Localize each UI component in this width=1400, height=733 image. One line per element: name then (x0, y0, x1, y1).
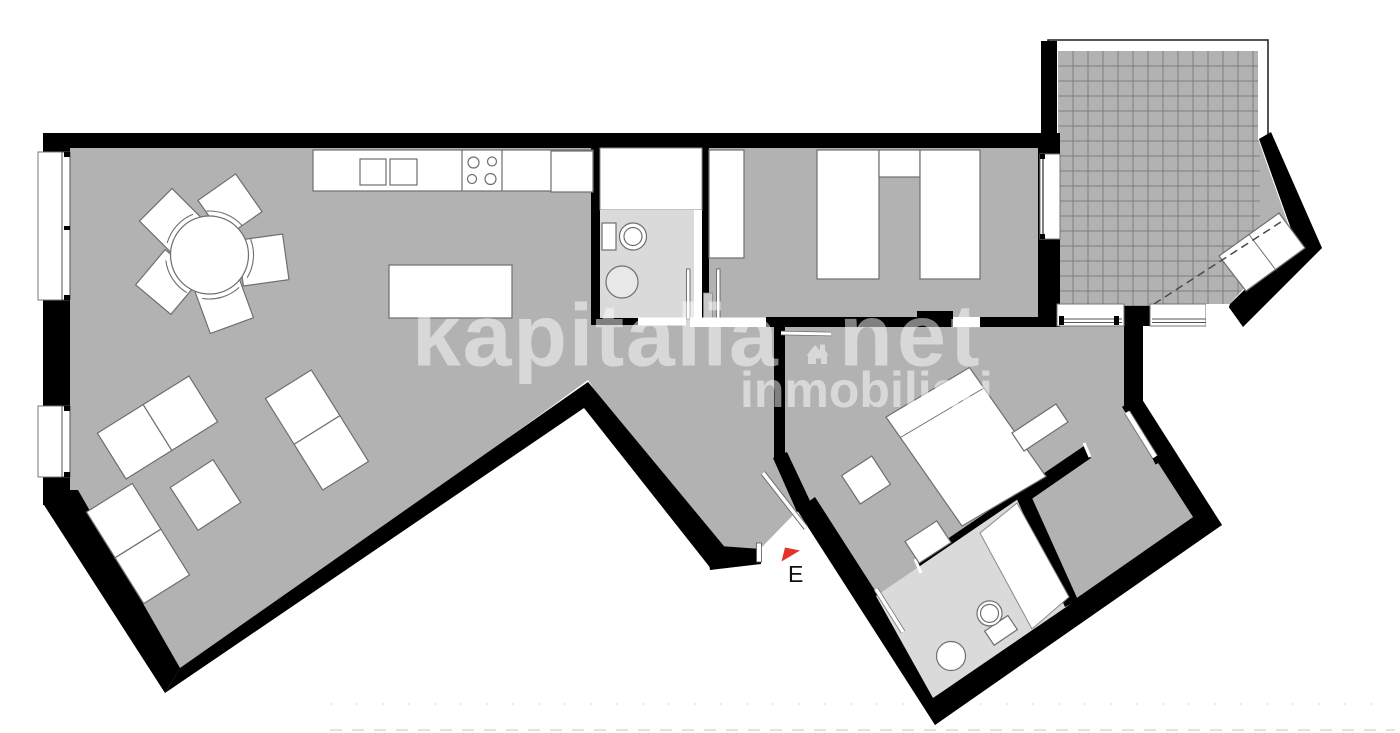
svg-text:inmobiliaria: inmobiliaria (740, 362, 1022, 418)
svg-text:E: E (788, 561, 803, 587)
svg-text:kapitalia: kapitalia (412, 286, 779, 385)
